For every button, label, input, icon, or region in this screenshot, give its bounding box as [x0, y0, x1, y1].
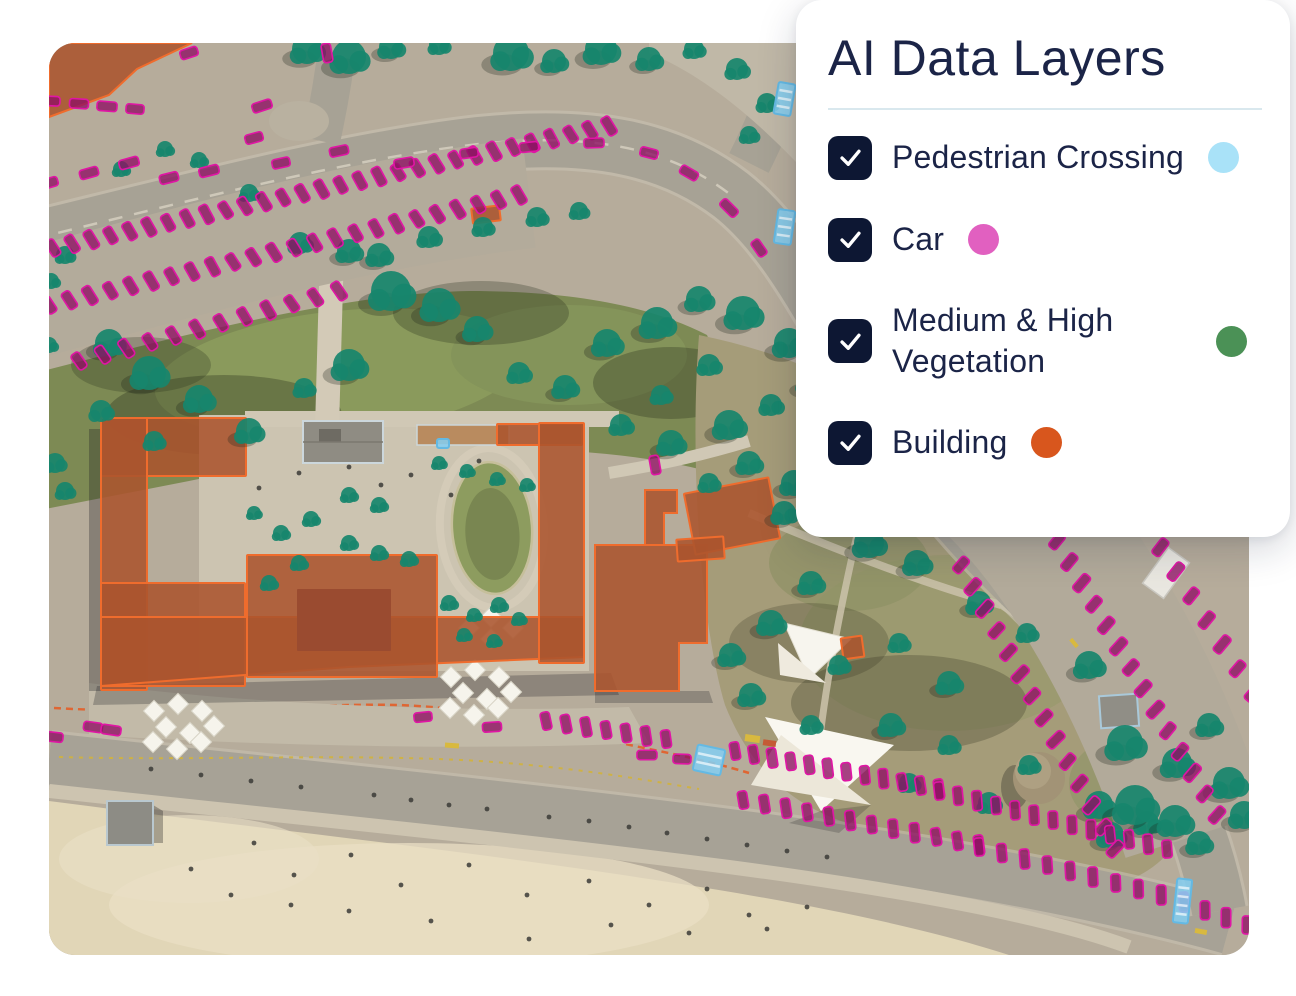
grey-roof-building — [303, 421, 383, 463]
pergola-roof — [417, 425, 509, 445]
layer-checkbox-medium-high-vegetation[interactable] — [828, 319, 872, 363]
checkmark-icon — [837, 328, 864, 355]
layer-label-car: Car — [892, 219, 944, 261]
layer-row-car: Car — [828, 218, 1262, 262]
ai-data-layers-panel: AI Data Layers Pedestrian CrossingCarMed… — [796, 0, 1290, 537]
layer-checkbox-pedestrian-crossing[interactable] — [828, 136, 872, 180]
layer-row-pedestrian-crossing: Pedestrian Crossing — [828, 136, 1262, 180]
layer-color-dot-car — [968, 224, 999, 255]
layer-row-building: Building — [828, 421, 1262, 465]
layer-row-medium-high-vegetation: Medium & High Vegetation — [828, 300, 1262, 383]
panel-title: AI Data Layers — [828, 30, 1262, 88]
checkmark-icon — [837, 429, 864, 456]
layer-label-building: Building — [892, 422, 1007, 464]
pier-structure — [107, 801, 163, 845]
grey-shed — [1099, 694, 1139, 729]
layer-label-pedestrian-crossing: Pedestrian Crossing — [892, 137, 1184, 179]
layer-checkbox-car[interactable] — [828, 218, 872, 262]
panel-divider — [828, 108, 1262, 110]
layer-color-dot-medium-high-vegetation — [1216, 326, 1247, 357]
layer-color-dot-building — [1031, 427, 1062, 458]
app-background: AI Data Layers Pedestrian CrossingCarMed… — [0, 0, 1296, 996]
layer-toggle-list: Pedestrian CrossingCarMedium & High Vege… — [828, 136, 1262, 465]
layer-label-medium-high-vegetation: Medium & High Vegetation — [892, 300, 1192, 383]
layer-checkbox-building[interactable] — [828, 421, 872, 465]
checkmark-icon — [837, 226, 864, 253]
layer-color-dot-pedestrian-crossing — [1208, 142, 1239, 173]
checkmark-icon — [837, 144, 864, 171]
